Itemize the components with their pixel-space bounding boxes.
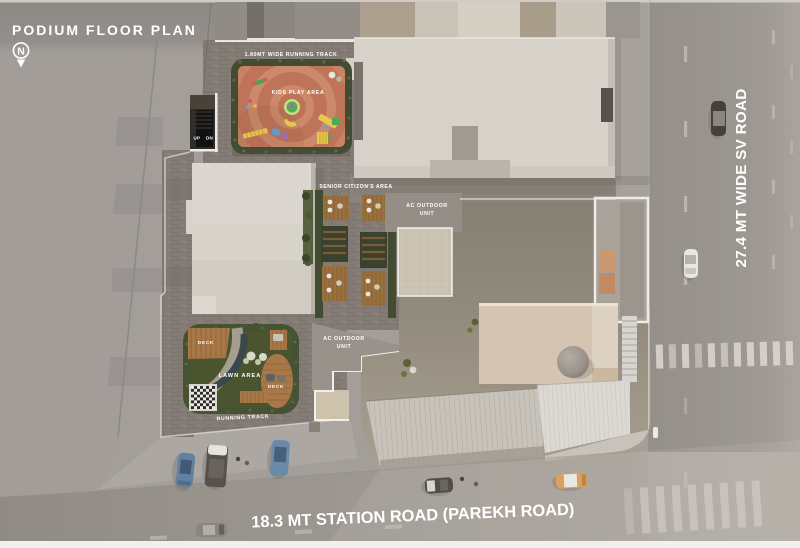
svg-text:DECK: DECK: [198, 340, 214, 345]
svg-text:N: N: [17, 46, 25, 58]
svg-text:UP: UP: [194, 136, 201, 141]
svg-text:LAWN AREA: LAWN AREA: [219, 373, 262, 379]
svg-text:KIDS PLAY AREA: KIDS PLAY AREA: [272, 90, 325, 96]
svg-text:AC OUTDOOR: AC OUTDOOR: [406, 203, 447, 209]
svg-text:DN: DN: [206, 136, 213, 141]
svg-text:DECK: DECK: [268, 384, 284, 389]
svg-text:27.4 MT WIDE SV ROAD: 27.4 MT WIDE SV ROAD: [733, 89, 750, 268]
svg-text:1.80MT WIDE RUNNING TRACK: 1.80MT WIDE RUNNING TRACK: [245, 52, 338, 58]
svg-text:UNIT: UNIT: [337, 344, 352, 350]
svg-text:AC OUTDOOR: AC OUTDOOR: [323, 336, 364, 342]
svg-text:SENIOR CITIZON'S AREA: SENIOR CITIZON'S AREA: [319, 184, 392, 190]
svg-text:PODIUM FLOOR PLAN: PODIUM FLOOR PLAN: [12, 22, 197, 38]
svg-text:UNIT: UNIT: [420, 211, 435, 217]
